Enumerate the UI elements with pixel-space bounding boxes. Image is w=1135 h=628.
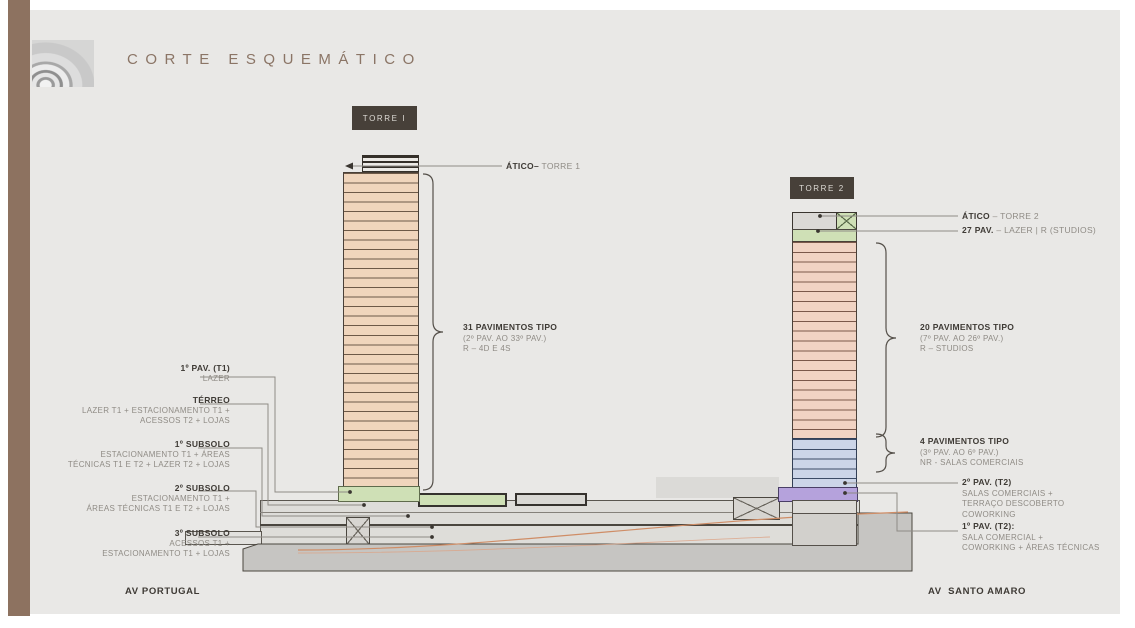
street-av-santo-amaro: AV SANTO AMARO <box>928 586 1026 597</box>
left-label-2subsolo: 2º SUBSOLOESTACIONAMENTO T1 +ÁREAS TÉCNI… <box>30 483 230 515</box>
tower1-leisure-deck <box>338 486 420 502</box>
tower2-tag: TORRE 2 <box>790 177 854 199</box>
diagram-canvas: CORTE ESQUEMÁTICO TORRE I TORRE 2 <box>30 10 1120 614</box>
left-label-line: ESTACIONAMENTO T1 + LOJAS <box>30 549 230 560</box>
tower1-bracket-label: 31 PAVIMENTOS TIPO (2º PAV. AO 33º PAV.)… <box>463 322 557 355</box>
terrace-block <box>656 477 779 498</box>
tower2-commercial-floors <box>792 438 857 489</box>
slide-page: CORTE ESQUEMÁTICO TORRE I TORRE 2 <box>0 0 1135 628</box>
page-title: CORTE ESQUEMÁTICO <box>127 51 422 68</box>
left-label-title: 2º SUBSOLO <box>30 483 230 494</box>
tower2-bracket4-label: 4 PAVIMENTOS TIPO (3º PAV. AO 6º PAV.) N… <box>920 436 1024 469</box>
tower2-residential-floors <box>792 241 857 440</box>
tower1-attic-label-rest: TORRE 1 <box>539 161 580 171</box>
left-label-line: LAZER <box>30 374 230 385</box>
left-label-title: TÉRREO <box>30 395 230 406</box>
tower1-attic-cap <box>362 155 419 173</box>
left-label-line: ACESSOS T1 + <box>30 539 230 550</box>
left-label-3subsolo: 3º SUBSOLOACESSOS T1 +ESTACIONAMENTO T1 … <box>30 528 230 560</box>
tower1-floors <box>343 172 419 488</box>
left-label-terreo: TÉRREOLAZER T1 + ESTACIONAMENTO T1 +ACES… <box>30 395 230 427</box>
ground-slab-green <box>418 493 507 507</box>
left-label-title: 3º SUBSOLO <box>30 528 230 539</box>
tower2-2pav-label: 2º PAV. (T2) SALAS COMERCIAIS + TERRAÇO … <box>962 477 1064 520</box>
left-label-title: 1º SUBSOLO <box>30 439 230 450</box>
water-ripple-image <box>32 40 94 87</box>
tower2-attic-cap <box>792 212 838 230</box>
left-label-1subsolo: 1º SUBSOLOESTACIONAMENTO T1 + ÁREASTÉCNI… <box>30 439 230 471</box>
tower1-attic-label: ÁTICO– TORRE 1 <box>506 161 580 173</box>
tower1-attic-label-bold: ÁTICO– <box>506 161 539 171</box>
left-label-1pav-t1: 1º PAV. (T1)LAZER <box>30 363 230 384</box>
left-accent-bar <box>8 0 30 616</box>
street-av-portugal: AV PORTUGAL <box>125 586 200 597</box>
left-label-line: TÉCNICAS T1 E T2 + LAZER T2 + LOJAS <box>30 460 230 471</box>
core-hatch-tower2 <box>733 497 780 520</box>
left-label-line: ESTACIONAMENTO T1 + <box>30 494 230 505</box>
core-hatch-tower1 <box>346 517 370 545</box>
tower1-tag: TORRE I <box>352 106 417 130</box>
tower2-attic-hatch <box>836 212 857 230</box>
tower2-base-lower <box>792 513 857 546</box>
tower2-27pav-label: 27 PAV. – LAZER | R (STUDIOS) <box>962 225 1096 237</box>
left-label-line: LAZER T1 + ESTACIONAMENTO T1 + <box>30 406 230 417</box>
left-label-line: ACESSOS T2 + LOJAS <box>30 416 230 427</box>
ground-slab-gray <box>515 493 587 506</box>
left-label-line: ÁREAS TÉCNICAS T1 E T2 + LOJAS <box>30 504 230 515</box>
left-label-line: ESTACIONAMENTO T1 + ÁREAS <box>30 450 230 461</box>
tower2-attic-label: ÁTICO – TORRE 2 <box>962 211 1039 223</box>
tower2-bracket20-label: 20 PAVIMENTOS TIPO (7º PAV. AO 26º PAV.)… <box>920 322 1014 355</box>
left-label-title: 1º PAV. (T1) <box>30 363 230 374</box>
tower2-1pav-label: 1º PAV. (T2): SALA COMERCIAL + COWORKING… <box>962 521 1100 554</box>
